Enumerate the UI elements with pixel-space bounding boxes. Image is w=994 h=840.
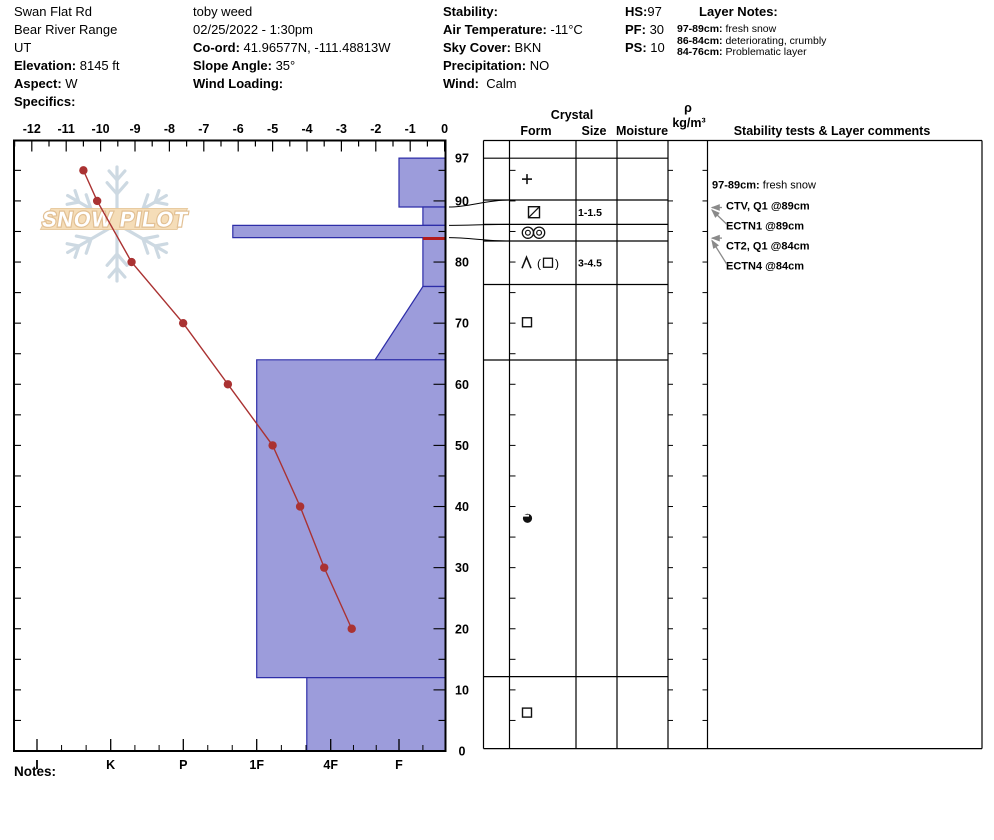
layer-comment: 97-89cm: fresh snow	[712, 180, 816, 192]
temperature-point	[348, 625, 356, 633]
hardness-tick-label: 1F	[249, 758, 264, 772]
temperature-point	[224, 380, 232, 388]
depth-tick-label: 60	[455, 378, 469, 392]
weather-info: Stability: Air Temperature: -11°C Sky Co…	[443, 4, 583, 94]
layer-bar-86-84	[233, 225, 446, 237]
grain-form-square-icon	[523, 318, 532, 327]
temp-tick-label: -10	[92, 122, 110, 136]
size-header: Size	[581, 124, 606, 138]
layer-bar-97-89	[399, 158, 446, 207]
stability-test-text: ECTN4 @84cm	[726, 261, 804, 273]
temp-tick-label: -9	[129, 122, 140, 136]
pf-line: PF: 30	[625, 22, 665, 40]
stability-test-arrow	[712, 241, 727, 265]
layer-notes: 97-89cm: fresh snow 86-84cm: deteriorati…	[677, 23, 826, 58]
depth-tick-label: 97	[455, 152, 469, 166]
stability-test-text: CTV, Q1 @89cm	[726, 201, 810, 213]
grain-size-text: 1-1.5	[578, 207, 602, 219]
weather-line: Air Temperature: -11°C	[443, 22, 583, 40]
depth-tick-label: 40	[455, 500, 469, 514]
temp-tick-label: -3	[336, 122, 347, 136]
observer-line: 02/25/2022 - 1:30pm	[193, 22, 391, 40]
depth-tick-label: 10	[455, 683, 469, 697]
temperature-point	[268, 441, 276, 449]
snowpack-summary: HS:97 PF: 30 PS: 10	[625, 4, 665, 58]
temp-tick-label: 0	[441, 122, 448, 136]
layer-note-item: 97-89cm: fresh snow	[677, 23, 826, 35]
snowpilot-profile-page: SNOW PILOT-12-11-10-9-8-7-6-5-4-3-2-1097…	[0, 0, 994, 840]
density-symbol-header: ρ	[684, 101, 692, 115]
moisture-header: Moisture	[616, 124, 668, 138]
snowpilot-logo-text: SNOW PILOT	[40, 207, 190, 232]
grain-form-double-bullseye-icon	[522, 227, 544, 238]
layer-note-item: 86-84cm: deteriorating, crumbly	[677, 35, 826, 47]
ps-line: PS: 10	[625, 40, 665, 58]
temp-tick-label: -1	[405, 122, 416, 136]
observer-info: toby weed 02/25/2022 - 1:30pm Co-ord: 41…	[193, 4, 391, 94]
temp-tick-label: -5	[267, 122, 278, 136]
snowpilot-watermark: SNOW PILOT	[40, 167, 190, 281]
layer-note-item: 84-76cm: Problematic layer	[677, 46, 826, 58]
depth-tick-label: 20	[455, 622, 469, 636]
hardness-tick-label: K	[106, 758, 115, 772]
weather-line: Precipitation: NO	[443, 58, 583, 76]
temperature-point	[296, 502, 304, 510]
depth-tick-label: 30	[455, 561, 469, 575]
layer-leader-line	[449, 224, 510, 225]
layer-bar-12-0	[307, 678, 446, 751]
temp-tick-label: -12	[23, 122, 41, 136]
site-line: Bear River Range	[14, 22, 120, 40]
depth-tick-label: 80	[455, 256, 469, 270]
observer-line: toby weed	[193, 4, 391, 22]
grain-form-square-slash-icon	[529, 207, 540, 218]
grain-form-square-icon	[523, 708, 532, 717]
site-line: Specifics:	[14, 94, 120, 112]
weather-line: Wind: Calm	[443, 76, 583, 94]
temp-tick-label: -8	[164, 122, 175, 136]
observer-line: Wind Loading:	[193, 76, 391, 94]
paren: )	[555, 256, 559, 270]
temp-tick-label: -2	[370, 122, 381, 136]
density-unit-header: kg/m³	[672, 116, 705, 130]
temperature-point	[127, 258, 135, 266]
site-line: UT	[14, 40, 120, 58]
weather-line: Sky Cover: BKN	[443, 40, 583, 58]
temperature-point	[320, 563, 328, 571]
depth-tick-label: 70	[455, 317, 469, 331]
layer-notes-title: Layer Notes:	[699, 4, 778, 19]
crystal-header: Crystal	[551, 108, 593, 122]
stability-test-text: ECTN1 @89cm	[726, 221, 804, 233]
grain-form-plus-icon	[522, 174, 532, 184]
paren: (	[537, 256, 541, 270]
notes-label: Notes:	[14, 764, 56, 779]
grain-form-circle-notch-icon	[523, 514, 532, 523]
temperature-point	[179, 319, 187, 327]
form-header: Form	[520, 124, 551, 138]
stability-header: Stability tests & Layer comments	[734, 124, 931, 138]
temp-tick-label: -4	[301, 122, 312, 136]
temperature-point	[93, 197, 101, 205]
observer-line: Slope Angle: 35°	[193, 58, 391, 76]
hardness-tick-label: 4F	[323, 758, 338, 772]
site-line: Swan Flat Rd	[14, 4, 120, 22]
hardness-tick-label: P	[179, 758, 187, 772]
temperature-point	[79, 166, 87, 174]
depth-tick-label: 0	[459, 745, 466, 759]
depth-tick-label: 50	[455, 439, 469, 453]
observer-line: Co-ord: 41.96577N, -111.48813W	[193, 40, 391, 58]
layer-leader-line	[449, 238, 510, 241]
site-line: Aspect: W	[14, 76, 120, 94]
temp-tick-label: -7	[198, 122, 209, 136]
hs-line: HS:97	[625, 4, 665, 22]
site-line: Elevation: 8145 ft	[14, 58, 120, 76]
temp-tick-label: -6	[233, 122, 244, 136]
temp-tick-label: -11	[58, 122, 75, 136]
hardness-tick-label: F	[395, 758, 403, 772]
layer-bar-89-86	[423, 207, 446, 225]
stability-test-arrow	[712, 210, 727, 224]
grain-size-text: 3-4.5	[578, 258, 602, 270]
grain-form-lambda-paren-square-icon: ()	[522, 256, 559, 270]
stability-test-text: CT2, Q1 @84cm	[726, 241, 810, 253]
weather-line: Stability:	[443, 4, 583, 22]
site-info: Swan Flat Rd Bear River Range UT Elevati…	[14, 4, 120, 112]
